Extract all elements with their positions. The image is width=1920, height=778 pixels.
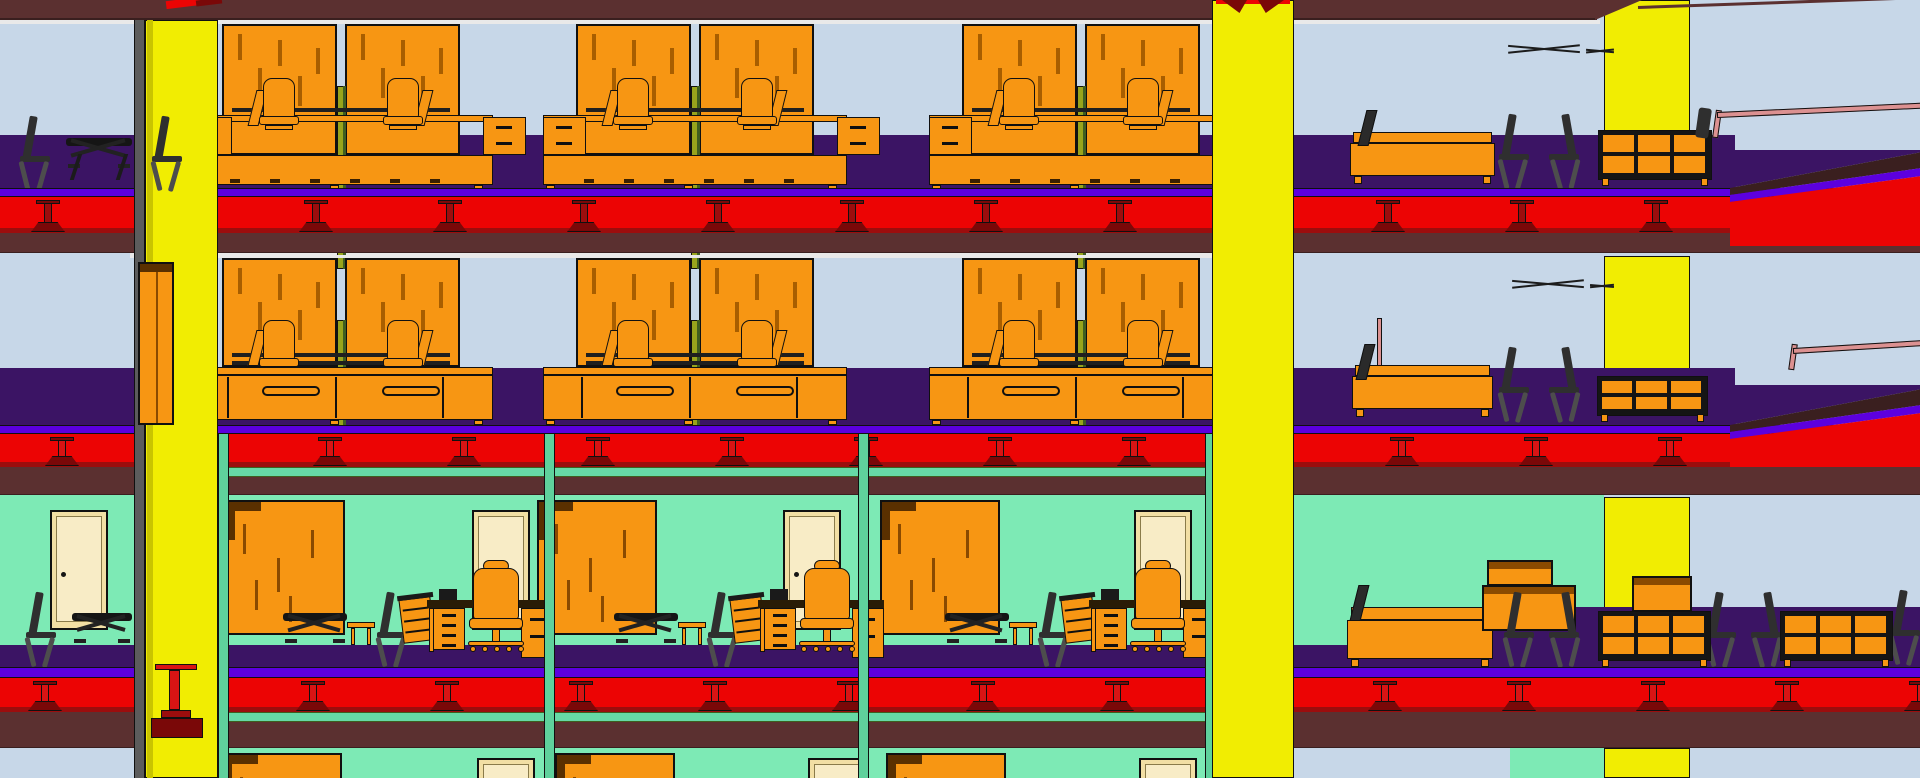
task-chair-back[interactable] bbox=[1127, 320, 1159, 360]
drawer-handle bbox=[1104, 644, 1118, 647]
task-chair-seat bbox=[999, 116, 1039, 125]
panel-slot bbox=[755, 274, 759, 300]
desk-pedestal-left[interactable] bbox=[1095, 608, 1127, 650]
panel-slot bbox=[670, 48, 674, 74]
chair-backrest bbox=[28, 592, 44, 637]
storage-box-lid bbox=[1634, 578, 1690, 585]
chair-backrest bbox=[1561, 592, 1577, 637]
task-chair-back[interactable] bbox=[617, 320, 649, 360]
panel-slot bbox=[755, 40, 759, 66]
task-chair-back[interactable] bbox=[617, 78, 649, 118]
side-chair[interactable] bbox=[1493, 114, 1535, 190]
side-chair[interactable] bbox=[146, 116, 188, 192]
cubicle-credenza[interactable] bbox=[543, 375, 847, 420]
drawer-handle bbox=[1104, 614, 1118, 617]
panel-slot bbox=[1179, 282, 1183, 308]
wardrobe-slot bbox=[243, 524, 246, 554]
caster-mark bbox=[664, 179, 674, 183]
beam-support-stem bbox=[580, 203, 588, 223]
tall-wardrobe-top bbox=[140, 264, 172, 272]
shelf-cell bbox=[1785, 637, 1816, 654]
door-knob bbox=[61, 572, 66, 577]
beam-support-stem bbox=[443, 684, 451, 702]
desk-surface[interactable] bbox=[929, 367, 1233, 375]
caster-mark bbox=[784, 179, 794, 183]
panel-slot bbox=[316, 282, 320, 308]
task-chair-seat bbox=[259, 116, 299, 125]
panel-slot bbox=[998, 302, 1002, 332]
drawer-handle bbox=[773, 634, 787, 637]
caster-dot bbox=[482, 646, 488, 652]
task-chair-back[interactable] bbox=[263, 78, 295, 118]
drawer-handle bbox=[530, 635, 544, 638]
mint-column[interactable] bbox=[858, 434, 869, 778]
chair-backrest bbox=[154, 116, 170, 161]
caster-mark bbox=[270, 179, 280, 183]
credenza-seam bbox=[335, 377, 337, 418]
panel-slot bbox=[298, 310, 302, 340]
panel-slot bbox=[1121, 302, 1125, 332]
caster-mark bbox=[1050, 179, 1060, 183]
door-panel bbox=[56, 516, 102, 622]
panel-slot bbox=[632, 40, 636, 66]
drawer-handle bbox=[496, 142, 512, 145]
task-chair-back[interactable] bbox=[1127, 78, 1159, 118]
cart-drawer-line bbox=[1066, 617, 1092, 622]
drawer-oval-handle bbox=[616, 386, 674, 396]
shelf-cell bbox=[1603, 616, 1634, 633]
beam-support-stem bbox=[711, 684, 719, 702]
meeting-table-leg bbox=[664, 639, 676, 643]
drawer-handle bbox=[442, 644, 456, 647]
shelf-foot bbox=[1602, 178, 1609, 186]
office-chair-back[interactable] bbox=[473, 568, 519, 620]
panel-slot bbox=[1141, 40, 1145, 66]
wardrobe-slot bbox=[932, 558, 935, 592]
side-chair[interactable] bbox=[1543, 592, 1585, 668]
table-leg-truss bbox=[70, 154, 128, 180]
shelf-foot bbox=[1784, 659, 1791, 667]
beam-support-stem bbox=[1783, 684, 1791, 702]
caster-dot bbox=[470, 646, 476, 652]
shelf-cell bbox=[1638, 616, 1669, 633]
caster-dot bbox=[1132, 646, 1138, 652]
column-splice-base bbox=[161, 710, 191, 718]
tall-wardrobe-seam bbox=[156, 272, 158, 423]
caster-dot bbox=[1156, 646, 1162, 652]
ceiling-mint-strip bbox=[218, 712, 1210, 722]
panel-slot bbox=[439, 282, 443, 308]
caster-mark bbox=[1010, 179, 1020, 183]
panel-slot bbox=[316, 48, 320, 74]
chair-front-leg bbox=[1568, 392, 1580, 422]
desk-pedestal[interactable] bbox=[483, 117, 526, 155]
panel-slot bbox=[592, 34, 596, 60]
bench-foot bbox=[1481, 659, 1489, 667]
beam-support-stem bbox=[1398, 440, 1406, 457]
desk-monitor bbox=[439, 589, 457, 600]
beam-support-stem bbox=[58, 440, 66, 457]
shelf-cell bbox=[1855, 637, 1886, 654]
chair-backrest bbox=[1561, 347, 1577, 392]
chair-back-leg bbox=[42, 637, 55, 668]
shelf-cell bbox=[1820, 616, 1851, 633]
beam-support-stem bbox=[446, 203, 454, 223]
drawer-handle bbox=[942, 126, 958, 129]
panel-slot bbox=[1101, 268, 1105, 294]
desk-pedestal[interactable] bbox=[543, 117, 586, 155]
caster-dot bbox=[849, 646, 855, 652]
cart-drawer-line bbox=[1065, 607, 1091, 612]
door-panel bbox=[483, 764, 529, 778]
drawer-handle bbox=[1104, 634, 1118, 637]
panel-slot bbox=[652, 76, 656, 106]
panel-slot bbox=[793, 282, 797, 308]
office-chair-back[interactable] bbox=[1135, 568, 1181, 620]
task-chair-seat bbox=[383, 116, 423, 125]
shelf-cell bbox=[1638, 156, 1669, 173]
task-chair-seat bbox=[737, 358, 777, 367]
caster-mark bbox=[744, 179, 754, 183]
standing-rod[interactable] bbox=[1377, 318, 1382, 366]
task-chair-back[interactable] bbox=[263, 320, 295, 360]
drawer-handle bbox=[1192, 635, 1206, 638]
panel-slot bbox=[1056, 282, 1060, 308]
office-chair-back[interactable] bbox=[804, 568, 850, 620]
credenza-seam bbox=[1075, 377, 1077, 418]
panel-slot bbox=[238, 34, 242, 60]
beam-support-stem bbox=[979, 684, 987, 702]
caster-mark bbox=[1130, 179, 1140, 183]
bench-top[interactable] bbox=[1351, 607, 1489, 620]
caster-mark bbox=[350, 179, 360, 183]
panel-slot bbox=[381, 302, 385, 332]
beam-support-stem bbox=[460, 440, 468, 457]
task-chair-seat bbox=[1123, 116, 1163, 125]
credenza-seam bbox=[689, 377, 691, 418]
panel-slot bbox=[978, 34, 982, 60]
office-wall-f4-patch bbox=[1510, 748, 1604, 778]
desk-surface[interactable] bbox=[189, 115, 493, 122]
desk-pedestal-left[interactable] bbox=[764, 608, 796, 650]
credenza-top[interactable] bbox=[1355, 365, 1490, 376]
yellow-column-right[interactable] bbox=[1604, 748, 1690, 778]
chair-front-leg bbox=[1037, 637, 1049, 667]
beam-support-stem bbox=[848, 203, 856, 223]
chair-backrest bbox=[1501, 114, 1517, 159]
door-panel bbox=[814, 764, 860, 778]
drawer-handle bbox=[850, 126, 866, 129]
panel-slot bbox=[715, 34, 719, 60]
drawer-handle bbox=[773, 644, 787, 647]
drawer-handle bbox=[556, 142, 572, 145]
desk-pedestal[interactable] bbox=[929, 117, 972, 155]
chair-back-leg bbox=[168, 161, 181, 192]
shelf-cell bbox=[1603, 135, 1634, 152]
drawer-handle bbox=[556, 126, 572, 129]
cubicle-credenza[interactable] bbox=[189, 375, 493, 420]
panel-slot bbox=[1038, 76, 1042, 106]
beam-support-stem bbox=[1384, 203, 1392, 223]
panel-slot bbox=[735, 302, 739, 332]
drawer-handle bbox=[442, 634, 456, 637]
cart-drawer-line bbox=[404, 617, 430, 622]
drawer-oval-handle bbox=[382, 386, 440, 396]
slab-red-band bbox=[0, 197, 1920, 228]
office-chair-seat bbox=[1131, 618, 1185, 629]
door-knob bbox=[794, 572, 799, 577]
task-chair-back[interactable] bbox=[1003, 320, 1035, 360]
caster-mark bbox=[390, 179, 400, 183]
beam-support-stem bbox=[1532, 440, 1540, 457]
shelf-cell bbox=[1820, 637, 1851, 654]
panel-slot bbox=[978, 268, 982, 294]
beam-support-stem bbox=[312, 203, 320, 223]
shelf-cell bbox=[1673, 637, 1704, 654]
chair-backrest bbox=[1506, 592, 1522, 637]
panel-slot bbox=[298, 76, 302, 106]
caster-dot bbox=[518, 646, 524, 652]
wardrobe-top-notch bbox=[882, 502, 890, 540]
chair-back-leg bbox=[1550, 392, 1563, 423]
shelf-foot bbox=[1602, 659, 1609, 667]
chair-back-leg bbox=[1752, 637, 1765, 668]
beam-support-stem bbox=[982, 203, 990, 223]
caster-dot bbox=[801, 646, 807, 652]
side-chair[interactable] bbox=[1543, 114, 1585, 190]
drawer-handle bbox=[773, 614, 787, 617]
task-chair-under bbox=[1005, 125, 1033, 130]
panel-slot bbox=[401, 274, 405, 300]
side-chair[interactable] bbox=[14, 116, 56, 192]
drawer-handle bbox=[773, 624, 787, 627]
task-chair-under bbox=[619, 125, 647, 130]
task-chair-under bbox=[389, 125, 417, 130]
chair-back-leg bbox=[1906, 635, 1919, 666]
beam-support-stem bbox=[594, 440, 602, 457]
chair-front-leg bbox=[18, 161, 30, 191]
side-table-leg bbox=[351, 628, 355, 645]
desk-surface[interactable] bbox=[189, 367, 493, 375]
shelf-cell bbox=[1602, 397, 1632, 409]
side-chair[interactable] bbox=[20, 592, 62, 668]
caster-dot bbox=[506, 646, 512, 652]
credenza-foot bbox=[1354, 176, 1362, 184]
beam-support-stem bbox=[309, 684, 317, 702]
credenza-seam bbox=[227, 377, 229, 418]
credenza-seam bbox=[796, 377, 798, 418]
mint-column[interactable] bbox=[544, 434, 555, 778]
desk-pedestal[interactable] bbox=[837, 117, 880, 155]
chair-front-leg bbox=[1568, 637, 1580, 667]
panel-slot bbox=[1038, 310, 1042, 340]
caster-mark bbox=[310, 179, 320, 183]
desk-surface[interactable] bbox=[929, 115, 1233, 122]
shelf-cell bbox=[1603, 637, 1634, 654]
roof-white-line bbox=[0, 20, 1600, 24]
panel-slot bbox=[670, 282, 674, 308]
yellow-column-mid[interactable] bbox=[1212, 0, 1294, 778]
side-chair[interactable] bbox=[1543, 347, 1585, 423]
task-chair-under bbox=[1129, 125, 1157, 130]
drawer-handle bbox=[1104, 624, 1118, 627]
panel-slot bbox=[361, 268, 365, 294]
panel-slot bbox=[1179, 48, 1183, 74]
credenza-top[interactable] bbox=[1353, 132, 1492, 143]
caster-mark bbox=[430, 179, 440, 183]
beam-support-stem bbox=[728, 440, 736, 457]
task-chair-seat bbox=[613, 358, 653, 367]
beam-support-stem bbox=[1652, 203, 1660, 223]
cart-drawer-line bbox=[1067, 628, 1093, 633]
credenza-foot bbox=[1356, 409, 1364, 417]
drawer-oval-handle bbox=[736, 386, 794, 396]
drawer-oval-handle bbox=[1002, 386, 1060, 396]
slab-line-purple bbox=[0, 425, 1920, 434]
beam-support-stem bbox=[845, 684, 853, 702]
caster-dot bbox=[825, 646, 831, 652]
caster-mark bbox=[1170, 179, 1180, 183]
beam-support-stem bbox=[1130, 440, 1138, 457]
slab-red-band bbox=[0, 434, 1920, 462]
panel-slot bbox=[439, 48, 443, 74]
wardrobe-slot bbox=[966, 530, 969, 558]
wardrobe-slot bbox=[601, 596, 604, 622]
task-chair-seat bbox=[613, 116, 653, 125]
desk-surface[interactable] bbox=[543, 115, 847, 122]
task-chair-seat bbox=[1123, 358, 1163, 367]
panel-slot bbox=[612, 302, 616, 332]
mint-column[interactable] bbox=[218, 434, 229, 778]
shelf-cell bbox=[1855, 616, 1886, 633]
beam-support-stem bbox=[1113, 684, 1121, 702]
shelf-foot bbox=[1700, 659, 1707, 667]
panel-slot bbox=[632, 274, 636, 300]
task-chair-seat bbox=[383, 358, 423, 367]
chair-front-leg bbox=[24, 637, 36, 667]
task-chair-back[interactable] bbox=[1003, 78, 1035, 118]
shelf-foot bbox=[1882, 659, 1889, 667]
panel-slot bbox=[278, 40, 282, 66]
credenza-seam bbox=[581, 377, 583, 418]
task-chair-under bbox=[265, 125, 293, 130]
office-wall-f4 bbox=[213, 748, 1208, 778]
bench-body[interactable] bbox=[1347, 620, 1493, 659]
shelf-cell bbox=[1636, 381, 1666, 393]
column-splice-plate bbox=[151, 718, 203, 738]
shelf-cell bbox=[1785, 616, 1816, 633]
shelf-cell bbox=[1671, 381, 1701, 393]
shelf-cell bbox=[1636, 397, 1666, 409]
chair-backrest bbox=[1041, 592, 1057, 637]
shelf-cell bbox=[1603, 156, 1634, 173]
desk-monitor bbox=[770, 589, 788, 600]
credenza-seam bbox=[1182, 377, 1184, 418]
side-chair[interactable] bbox=[1493, 347, 1535, 423]
desk-leg bbox=[429, 608, 434, 652]
shelf-foot bbox=[1697, 414, 1704, 422]
handrail[interactable] bbox=[1793, 340, 1920, 354]
chair-front-leg bbox=[1568, 159, 1580, 189]
drawer-handle bbox=[1192, 618, 1206, 621]
chair-backrest bbox=[379, 592, 395, 637]
slab-red-band bbox=[0, 678, 1920, 707]
cubicle-credenza[interactable] bbox=[929, 375, 1233, 420]
drawer-handle bbox=[942, 142, 958, 145]
beam-support-stem bbox=[326, 440, 334, 457]
wardrobe-slot bbox=[311, 530, 314, 558]
wardrobe-slot bbox=[277, 558, 280, 592]
panel-slot bbox=[735, 68, 739, 98]
panel-slot bbox=[715, 268, 719, 294]
chair-front-leg bbox=[1502, 637, 1514, 667]
task-chair-back[interactable] bbox=[387, 320, 419, 360]
cart-drawer-line bbox=[405, 628, 431, 633]
desk-pedestal-left[interactable] bbox=[433, 608, 465, 650]
side-chair[interactable] bbox=[1498, 592, 1540, 668]
caster-mark bbox=[704, 179, 714, 183]
wardrobe-slot bbox=[567, 580, 570, 610]
handrail[interactable] bbox=[1717, 103, 1920, 118]
task-chair-back[interactable] bbox=[741, 78, 773, 118]
caster-dot bbox=[1144, 646, 1150, 652]
chair-front-leg bbox=[706, 637, 718, 667]
drawer-handle bbox=[850, 142, 866, 145]
panel-slot bbox=[793, 48, 797, 74]
meeting-table-leg bbox=[995, 639, 1007, 643]
meeting-table-leg bbox=[333, 639, 345, 643]
meeting-table-leg bbox=[118, 639, 130, 643]
credenza-body[interactable] bbox=[1350, 143, 1495, 176]
chair-back-leg bbox=[1520, 637, 1533, 668]
shelf-cell bbox=[1638, 135, 1669, 152]
side-table-leg bbox=[1013, 628, 1017, 645]
meeting-table-leg bbox=[947, 639, 959, 643]
caster-dot bbox=[837, 646, 843, 652]
wardrobe-slot bbox=[555, 524, 558, 554]
panel-slot bbox=[401, 40, 405, 66]
caster-dot bbox=[813, 646, 819, 652]
chair-backrest bbox=[1501, 347, 1517, 392]
wardrobe-slot bbox=[898, 524, 901, 554]
task-chair-under bbox=[743, 125, 771, 130]
chair-backrest bbox=[1763, 592, 1779, 637]
credenza-body[interactable] bbox=[1352, 376, 1493, 409]
chair-front-leg bbox=[150, 161, 162, 191]
panel-slot bbox=[381, 68, 385, 98]
desk-leg bbox=[760, 608, 765, 652]
drawer-oval-handle bbox=[262, 386, 320, 396]
task-chair-back[interactable] bbox=[387, 78, 419, 118]
task-chair-seat bbox=[999, 358, 1039, 367]
panel-slot bbox=[361, 34, 365, 60]
caster-mark bbox=[230, 179, 240, 183]
section-viewport bbox=[0, 0, 1920, 778]
chair-back-leg bbox=[1550, 637, 1563, 668]
cart-drawer-line bbox=[734, 607, 760, 612]
chair-back-leg bbox=[1722, 637, 1735, 668]
wardrobe-top-notch bbox=[557, 755, 565, 778]
shelf-cell bbox=[1673, 616, 1704, 633]
drawer-handle bbox=[496, 126, 512, 129]
task-chair-back[interactable] bbox=[741, 320, 773, 360]
shelf-cell bbox=[1671, 397, 1701, 409]
caster-mark bbox=[1090, 179, 1100, 183]
desk-surface[interactable] bbox=[543, 367, 847, 375]
beam-support-stem bbox=[577, 684, 585, 702]
panel-slot bbox=[1141, 274, 1145, 300]
drawer-handle bbox=[442, 614, 456, 617]
